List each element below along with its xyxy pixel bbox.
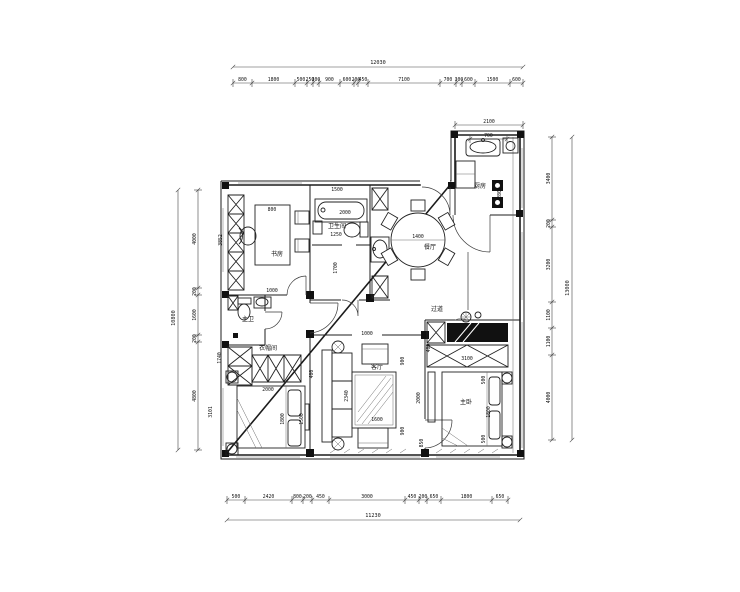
dim-label: 1100	[546, 336, 552, 348]
dim-label: 1700	[333, 262, 339, 274]
dim-label: 1800	[486, 406, 492, 418]
sofa-back	[322, 350, 332, 442]
dim-label: 3100	[461, 356, 473, 362]
vanity-cabinet	[372, 276, 388, 298]
sink-basin	[470, 141, 496, 153]
dim-label: 3000	[361, 494, 373, 500]
room-label: 厨房	[474, 182, 486, 190]
dim-label: 2340	[344, 390, 350, 402]
dim-label: 3400	[546, 173, 552, 185]
cabinet	[427, 322, 445, 343]
dim-label: 200	[192, 287, 198, 296]
dim-label: 1500	[487, 77, 499, 83]
dim-label: 7100	[398, 77, 410, 83]
rug-pattern	[357, 376, 393, 424]
bookcase	[228, 195, 244, 290]
dim-label: 4800	[192, 390, 198, 402]
dim-label: 200	[546, 219, 552, 228]
dim-label: 3200	[546, 259, 552, 271]
blanket-fold	[237, 398, 262, 448]
room-label: 客厅	[371, 363, 383, 371]
toilet-bowl	[344, 223, 360, 237]
room-label: 餐厅	[424, 243, 436, 251]
dim-label: 900	[400, 357, 406, 366]
dim-label: 1740	[217, 352, 223, 364]
bath-shelf	[313, 221, 322, 234]
dim-label: 450	[316, 494, 325, 500]
refrigerator	[456, 161, 475, 188]
dim-label: 10800	[171, 310, 177, 326]
room-label: 主卫	[242, 315, 254, 323]
room-label: 书房	[271, 250, 283, 258]
dim-label: 650	[496, 494, 505, 500]
wardrobe	[427, 345, 508, 367]
dim-label: 400	[426, 344, 432, 353]
dim-label: 1500	[331, 187, 343, 193]
bedroom2-furniture	[226, 371, 309, 455]
dim-label: 450	[359, 77, 368, 83]
dim-label: 300	[455, 77, 464, 83]
bedside-lamp	[502, 373, 512, 383]
wardrobe	[252, 355, 301, 382]
nightstand	[502, 372, 512, 384]
plant	[475, 312, 481, 318]
dim-label: 3101	[208, 406, 214, 418]
dim-label: 1400	[412, 234, 424, 240]
kitchen-furniture	[456, 138, 518, 208]
armchair	[358, 428, 388, 448]
dim-label: 1600	[371, 417, 383, 423]
dim-label: 12030	[370, 60, 386, 66]
floor-plan-drawing: 8001800500250300900600200450710070030060…	[0, 0, 740, 592]
dim-label: 1800	[461, 494, 473, 500]
dining-furniture	[381, 200, 455, 280]
wardrobe	[228, 347, 252, 385]
dim-label: 1000	[266, 288, 278, 294]
toilet-tank	[360, 222, 368, 237]
dining-chair	[411, 269, 425, 280]
dim-label: 450	[408, 494, 417, 500]
dim-label: 1100	[546, 309, 552, 321]
vanity-cabinet	[372, 188, 388, 210]
dim-label: 200	[192, 334, 198, 343]
dim-label: 3852	[218, 234, 224, 246]
dim-label: 2000	[416, 392, 422, 404]
sofa-seat	[332, 353, 352, 381]
closet-furniture	[228, 347, 301, 385]
dim-label: 1600	[192, 309, 198, 321]
dim-label: 850	[419, 439, 425, 448]
guest-chair	[295, 211, 309, 224]
dim-label: 650	[430, 494, 439, 500]
dim-label: 400	[309, 370, 315, 379]
dim-label: 900	[325, 77, 334, 83]
dim-label: 700	[484, 133, 493, 139]
living-furniture	[322, 341, 396, 450]
master-furniture	[427, 322, 512, 448]
washbasin	[256, 298, 268, 306]
dim-label: 600	[343, 77, 352, 83]
dim-label: 1000	[361, 331, 373, 337]
dim-label: 1500	[299, 413, 305, 425]
toilet-tank	[238, 298, 251, 304]
pillow	[288, 390, 301, 416]
dim-label: 300	[312, 77, 321, 83]
dim-label: 500	[481, 435, 487, 444]
dim-label: 800	[293, 494, 302, 500]
dim-label: 200	[303, 494, 312, 500]
tv-console	[447, 323, 508, 342]
dim-label: 11230	[365, 513, 381, 519]
dim-label: 1250	[330, 232, 342, 238]
structural-columns	[222, 131, 524, 457]
dim-label: 13000	[565, 280, 571, 296]
dim-label: 4000	[192, 233, 198, 245]
pillow	[489, 377, 500, 405]
dim-label: 2100	[483, 119, 495, 125]
dim-label: 600	[464, 77, 473, 83]
nightstand	[502, 436, 512, 448]
sofa-seat	[332, 409, 352, 437]
dim-label: 600	[512, 77, 521, 83]
bedside-lamp	[502, 437, 512, 447]
dim-label: 2000	[262, 387, 274, 393]
room-label: 衣帽间	[259, 344, 277, 352]
room-label: 主卧	[460, 398, 472, 406]
floor-drain	[233, 333, 238, 338]
room-label: 过道	[431, 305, 443, 313]
dim-label: 800	[268, 207, 277, 213]
bathroom-furniture	[313, 188, 389, 298]
armchair	[362, 344, 388, 364]
room-label: 卫生间	[328, 222, 346, 230]
dim-label: 2420	[263, 494, 275, 500]
dim-label: 1800	[280, 413, 286, 425]
dim-label: 500	[297, 77, 306, 83]
dim-label: 1800	[268, 77, 280, 83]
bath-cabinet	[228, 296, 238, 310]
dim-label: 2000	[339, 210, 351, 216]
guest-chair	[295, 239, 309, 252]
dim-label: 800	[238, 77, 247, 83]
dim-label: 4000	[546, 392, 552, 404]
dresser	[428, 372, 435, 422]
bedside-lamp	[227, 372, 237, 382]
dim-label: 2800	[497, 187, 503, 199]
dim-label: 900	[400, 427, 406, 436]
dim-label: 500	[481, 376, 487, 385]
dim-label: 200	[419, 494, 428, 500]
tv	[305, 404, 309, 430]
dim-label: 500	[232, 494, 241, 500]
bathtub-drain	[321, 208, 325, 212]
floor-plan-canvas: 8001800500250300900600200450710070030060…	[0, 0, 740, 592]
dining-chair	[411, 200, 425, 211]
dim-label: 700	[444, 77, 453, 83]
